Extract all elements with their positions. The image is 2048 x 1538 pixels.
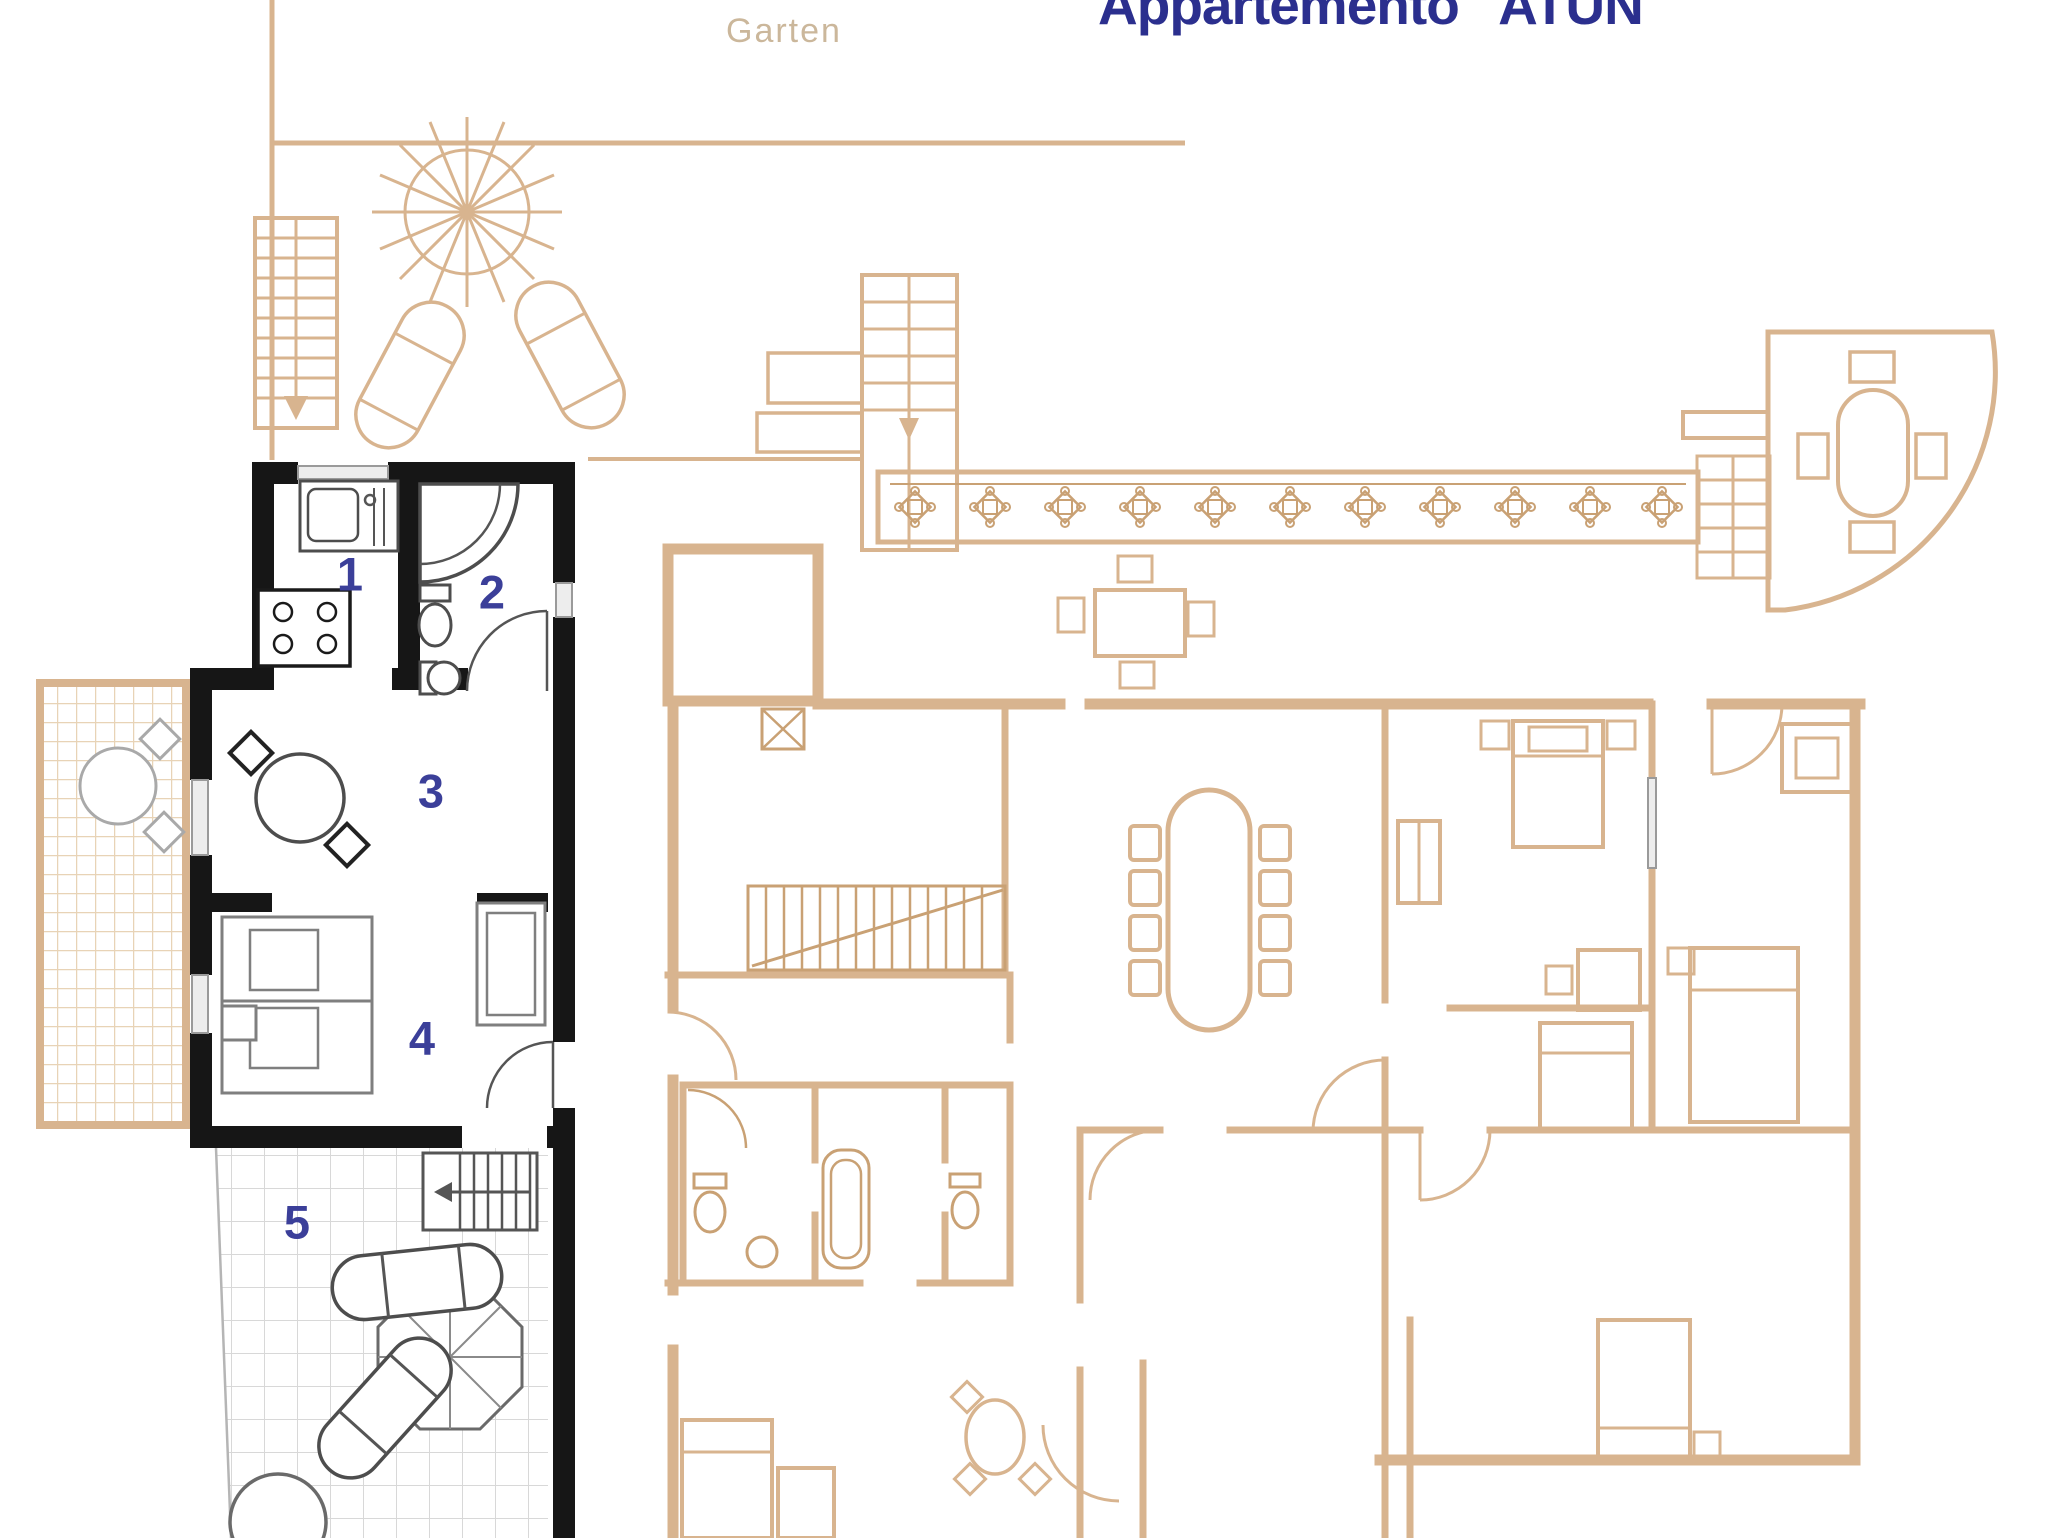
room-number-2: 2: [479, 565, 505, 620]
bedroom-furniture: [222, 903, 553, 1108]
planter-strip: [878, 472, 1698, 542]
window-top: [298, 466, 388, 479]
garden-lounger-1: [344, 291, 476, 460]
floor-plan-svg: [0, 0, 2048, 1538]
window-left-2: [192, 975, 208, 1033]
building-room-bottom-left: [668, 1012, 1385, 1538]
building-bedroom-3: [1090, 1130, 1720, 1460]
room-number-5: 5: [284, 1195, 310, 1250]
round-terrace: [1683, 332, 1995, 610]
room-number-3: 3: [418, 764, 444, 819]
plan-title: Appartemento "ATUN": [1098, 0, 2018, 37]
building-stair-lobby: [748, 886, 1005, 970]
room-number-1: 1: [337, 547, 363, 602]
building-walls: [668, 549, 1860, 1538]
left-terrace: [40, 683, 186, 1125]
garden-stairs: [255, 218, 337, 428]
window-right: [556, 583, 572, 617]
window-left-1: [192, 780, 208, 855]
building-bathrooms: [688, 1090, 980, 1268]
living-furniture: [230, 732, 368, 866]
garden-tree: [372, 117, 562, 307]
building-boiler: [762, 709, 804, 749]
courtyard-table: [1058, 556, 1214, 688]
building-bedroom-2: [1668, 704, 1852, 1122]
building-dining-table: [1130, 790, 1290, 1030]
garden-label: Garten: [726, 12, 842, 51]
building-bedroom-1: [1398, 721, 1640, 1130]
garden-lounger-2: [504, 271, 636, 440]
kitchen-furniture: [258, 481, 398, 666]
room-number-4: 4: [409, 1011, 435, 1066]
floor-plan-page: Appartemento "ATUN" Garten 1 2 3 4 5: [0, 0, 2048, 1538]
